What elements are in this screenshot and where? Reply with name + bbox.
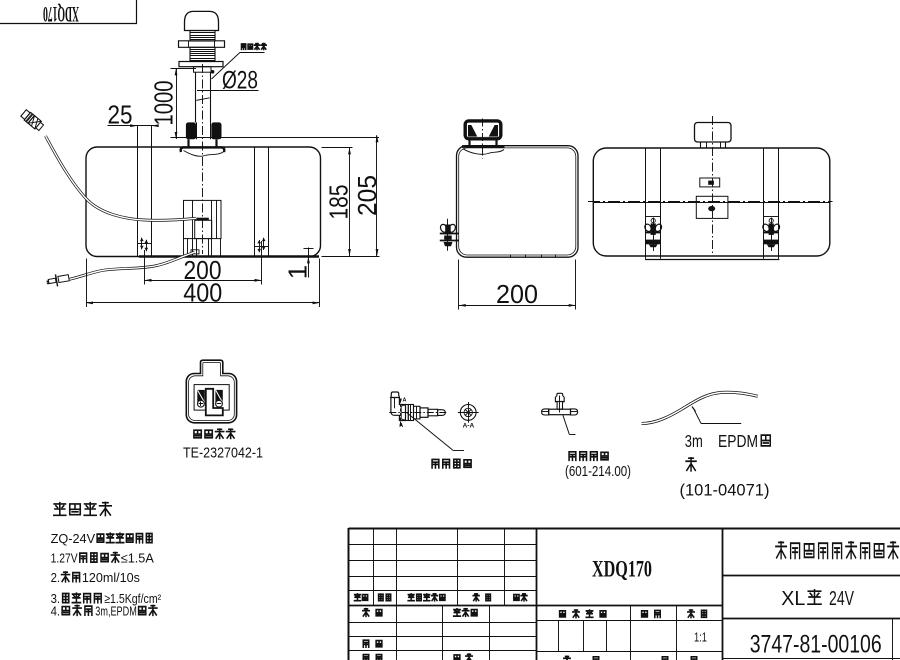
svg-text:ZQ-24V: ZQ-24V xyxy=(51,531,96,546)
svg-text:1: 1 xyxy=(282,265,312,279)
svg-text:TE-2327042-1: TE-2327042-1 xyxy=(183,445,263,462)
svg-text:XDQ170: XDQ170 xyxy=(43,2,79,27)
svg-text:3m: 3m xyxy=(685,431,703,451)
svg-text:A: A xyxy=(399,423,403,429)
svg-text:XDQ170: XDQ170 xyxy=(592,557,652,582)
svg-text:A-A: A-A xyxy=(463,422,475,429)
svg-text:A: A xyxy=(403,397,407,403)
svg-text:400: 400 xyxy=(183,278,222,308)
svg-text:200: 200 xyxy=(496,279,538,309)
svg-text:(101-04071): (101-04071) xyxy=(680,481,770,500)
svg-text:4.: 4. xyxy=(51,604,61,619)
svg-text:120ml/10s: 120ml/10s xyxy=(82,570,140,585)
svg-text:25: 25 xyxy=(108,99,133,129)
svg-text:XL: XL xyxy=(781,588,805,610)
svg-text:3747-81-00106: 3747-81-00106 xyxy=(750,631,882,659)
svg-text:24V: 24V xyxy=(829,588,854,610)
svg-text:1.27V: 1.27V xyxy=(51,551,78,566)
svg-text:1000: 1000 xyxy=(149,81,179,126)
svg-text:185: 185 xyxy=(324,185,354,220)
svg-text:EPDM: EPDM xyxy=(718,431,758,451)
svg-text:1:1: 1:1 xyxy=(694,630,707,645)
svg-text:(601-214.00): (601-214.00) xyxy=(565,463,631,480)
svg-text:3m,EPDM: 3m,EPDM xyxy=(95,604,137,619)
svg-text:205: 205 xyxy=(352,175,382,216)
svg-text:≤1.5A: ≤1.5A xyxy=(121,551,154,566)
svg-text:2.: 2. xyxy=(51,570,61,585)
